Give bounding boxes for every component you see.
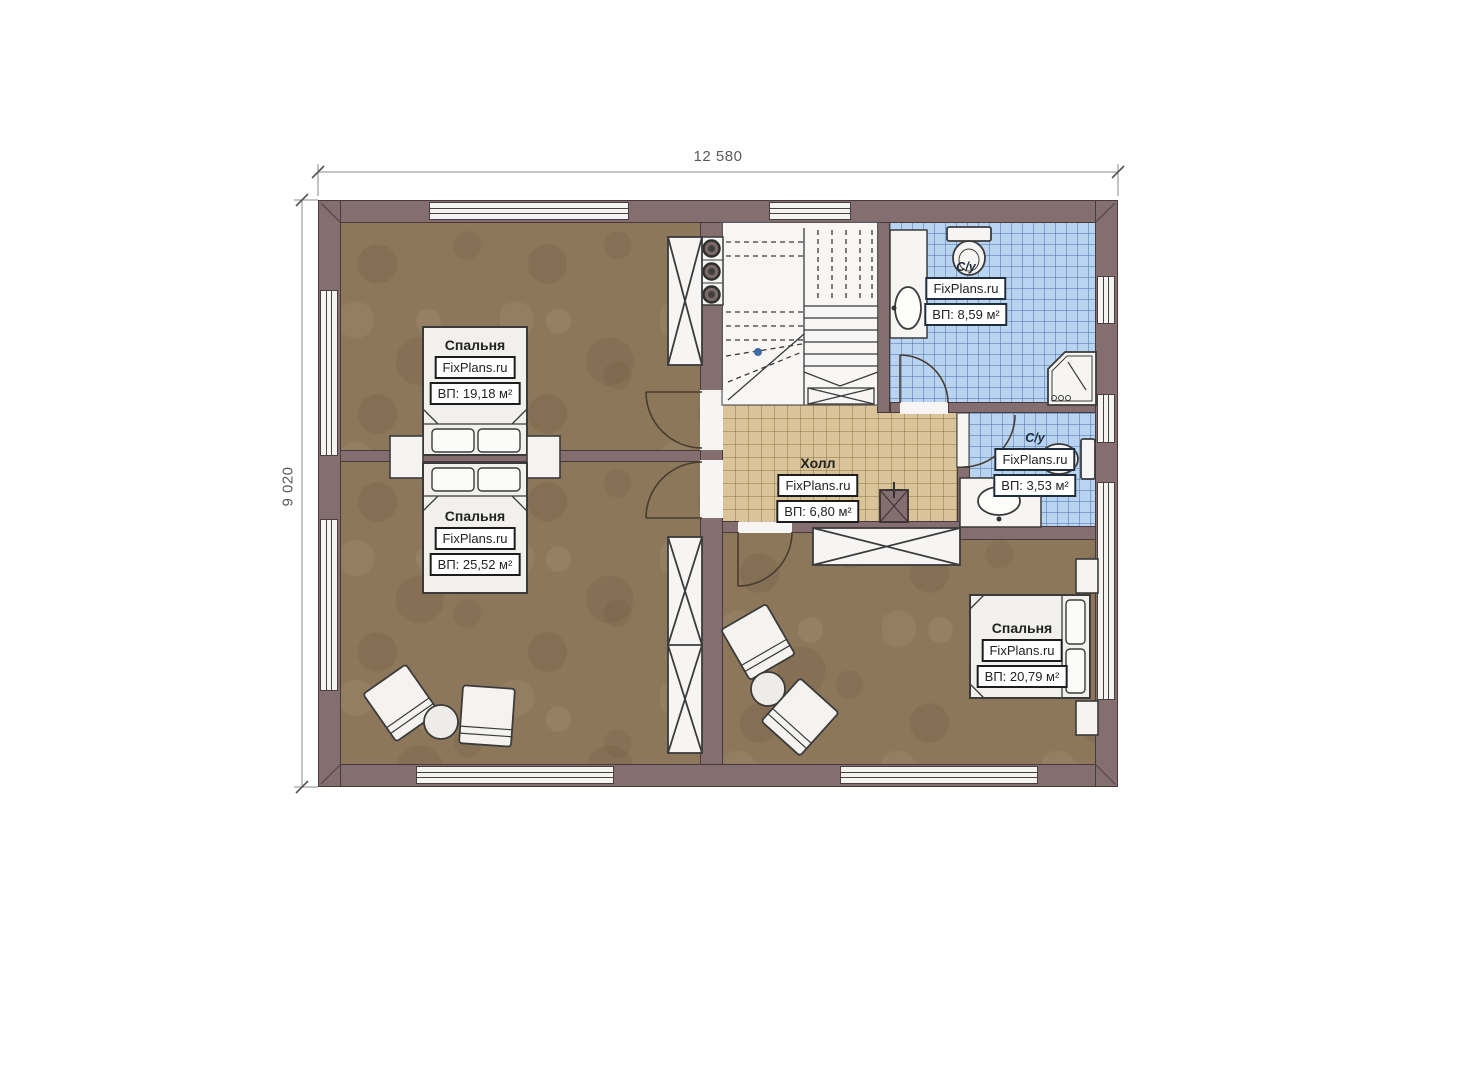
door-opening-bedroom-bottom-left — [700, 460, 723, 518]
wall-column-mid — [700, 304, 723, 391]
wall-column-bottom — [700, 517, 723, 765]
watermark-box: FixPlans.ru — [981, 639, 1062, 662]
watermark-box: FixPlans.ru — [925, 277, 1006, 300]
window-bottom-right — [840, 766, 1038, 784]
window-left-lower — [320, 519, 338, 691]
area-box: ВП: 3,53 м² — [993, 474, 1076, 497]
room-name: Холл — [800, 455, 835, 471]
window-right-bedroom — [1097, 482, 1115, 700]
room-label-bedroom-top-left: Спальня FixPlans.ru ВП: 19,18 м² — [430, 337, 521, 405]
wall-stair-bathroom — [877, 222, 890, 413]
window-top-left — [429, 202, 629, 220]
watermark-box: FixPlans.ru — [777, 474, 858, 497]
wall-between-left-bedrooms — [340, 450, 701, 462]
door-opening-bedroom-top-left — [700, 390, 723, 450]
floor-stair-zone — [722, 222, 878, 406]
dimension-line-top — [312, 164, 1124, 196]
area-box: ВП: 25,52 м² — [430, 553, 521, 576]
wall-hall-bottom-left — [722, 521, 739, 533]
window-right-wc — [1097, 394, 1115, 443]
dimension-width-label: 12 580 — [318, 148, 1118, 165]
room-label-bathroom-small: С/у FixPlans.ru ВП: 3,53 м² — [993, 431, 1076, 497]
window-right-bathroom — [1097, 276, 1115, 324]
watermark-box: FixPlans.ru — [994, 448, 1075, 471]
floor-plan-canvas: 12 580 9 020 — [0, 0, 1473, 1080]
wall-between-bathrooms — [948, 402, 1096, 413]
wall-bathroom-small-left — [957, 467, 970, 527]
room-label-bathroom-large: С/у FixPlans.ru ВП: 8,59 м² — [924, 260, 1007, 326]
room-label-hall: Холл FixPlans.ru ВП: 6,80 м² — [776, 455, 859, 523]
chimney-flues — [700, 237, 723, 305]
area-box: ВП: 19,18 м² — [430, 382, 521, 405]
floor-bedroom-top-left — [340, 222, 701, 452]
wall-bathroom-small-bottom — [957, 526, 1096, 540]
room-name: С/у — [1025, 431, 1044, 445]
room-name: Спальня — [445, 508, 505, 524]
wall-column-top — [700, 222, 723, 238]
watermark-box: FixPlans.ru — [434, 527, 515, 550]
room-name: Спальня — [992, 620, 1052, 636]
door-opening-bedroom-right — [738, 522, 792, 533]
watermark-box: FixPlans.ru — [434, 356, 515, 379]
room-name: С/у — [956, 260, 975, 274]
area-box: ВП: 20,79 м² — [977, 665, 1068, 688]
area-box: ВП: 6,80 м² — [776, 500, 859, 523]
door-opening-bathroom-large — [900, 402, 948, 414]
wall-outer-left — [318, 200, 341, 787]
dimension-height-label: 9 020 — [280, 457, 297, 517]
window-top-center — [769, 202, 851, 220]
floor-bedroom-bottom-left — [340, 460, 701, 766]
window-left-upper — [320, 290, 338, 456]
area-box: ВП: 8,59 м² — [924, 303, 1007, 326]
room-label-bedroom-right: Спальня FixPlans.ru ВП: 20,79 м² — [977, 620, 1068, 688]
window-bottom-left — [416, 766, 614, 784]
dimension-line-left — [294, 194, 318, 793]
room-label-bedroom-bottom-left: Спальня FixPlans.ru ВП: 25,52 м² — [430, 508, 521, 576]
room-name: Спальня — [445, 337, 505, 353]
